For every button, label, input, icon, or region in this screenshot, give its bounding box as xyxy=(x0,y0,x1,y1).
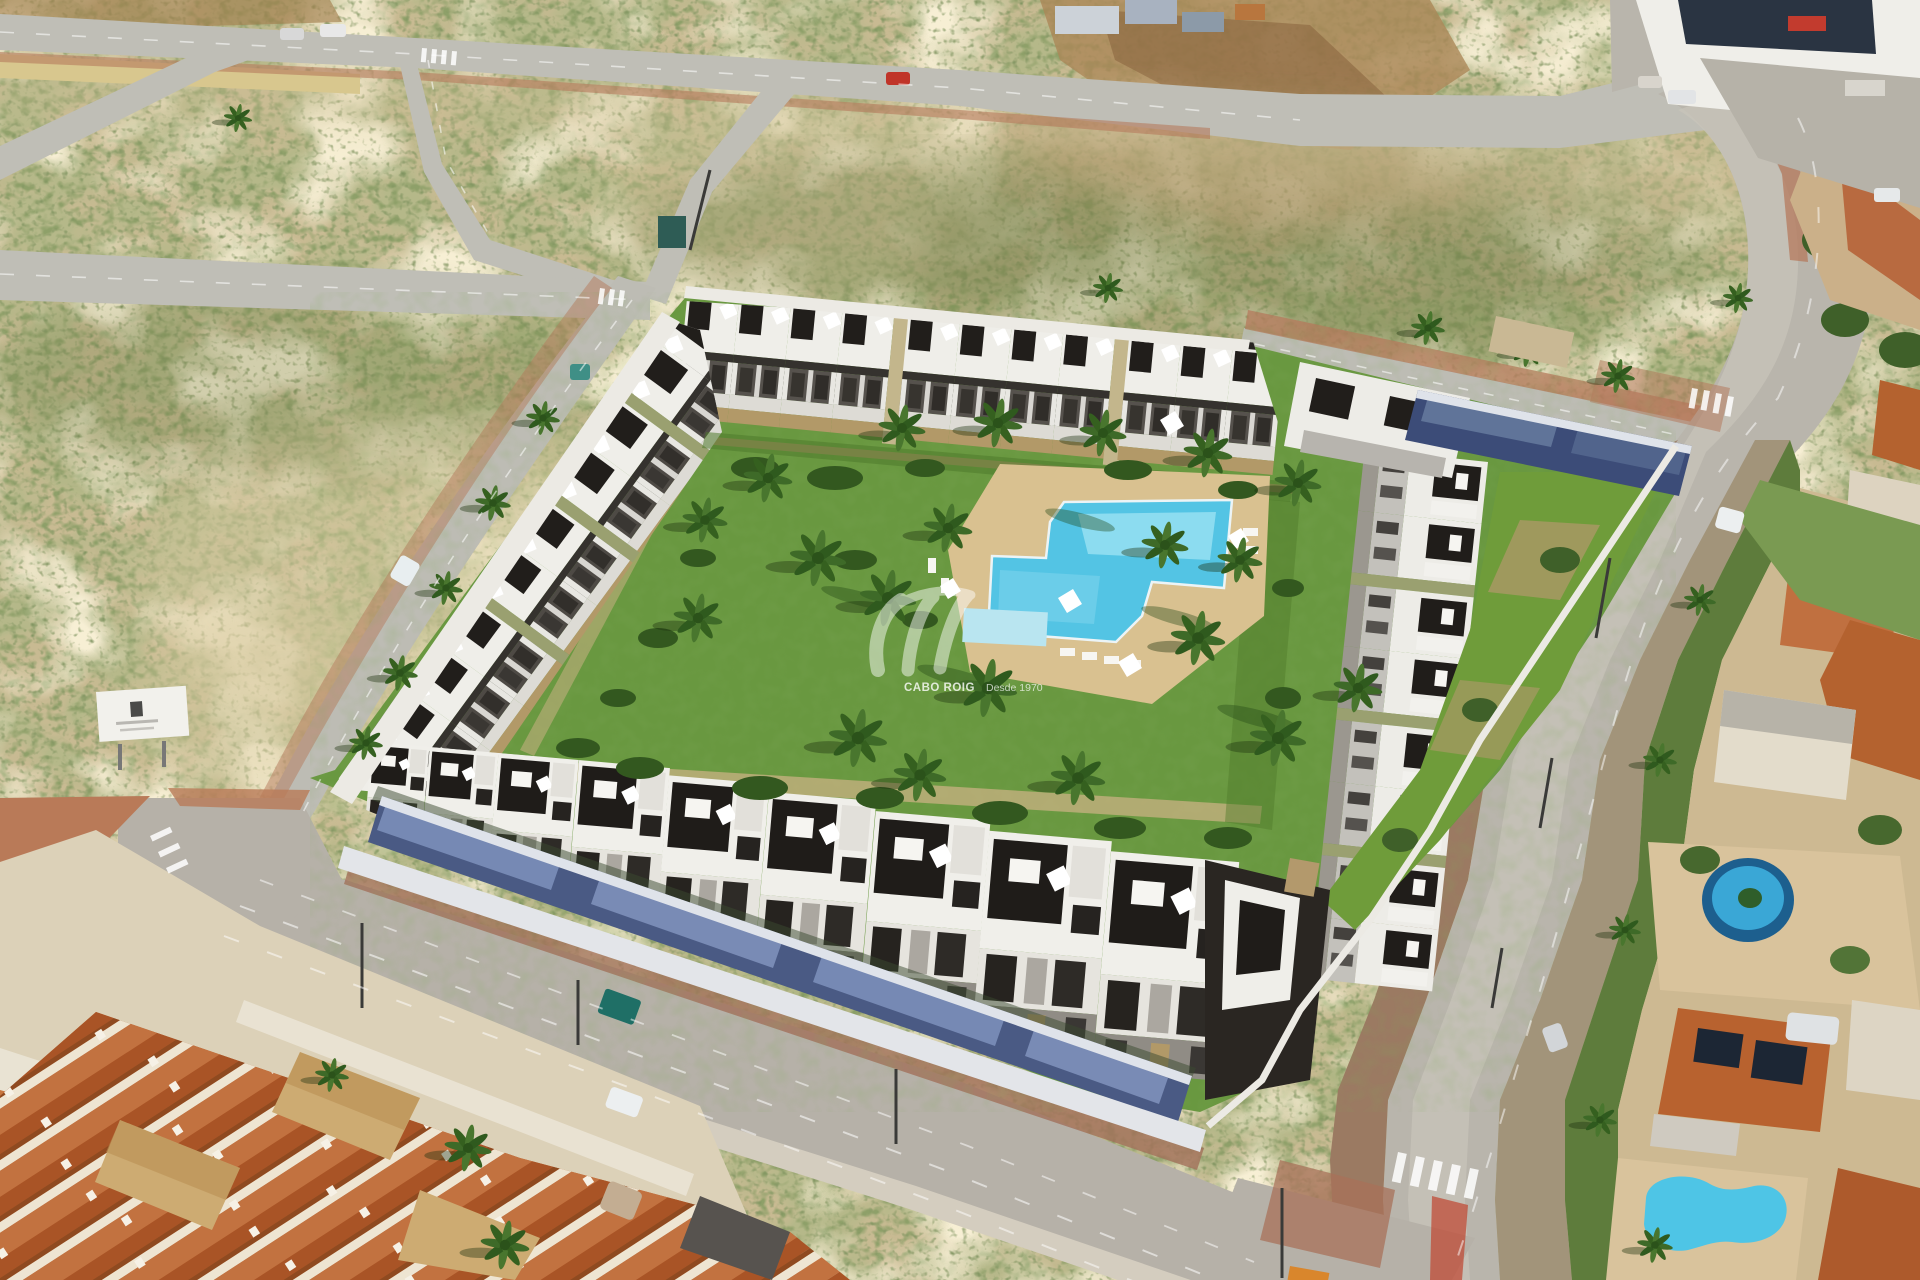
svg-text:Desde 1970: Desde 1970 xyxy=(986,682,1043,694)
svg-text:CABO ROIG: CABO ROIG xyxy=(904,682,975,694)
